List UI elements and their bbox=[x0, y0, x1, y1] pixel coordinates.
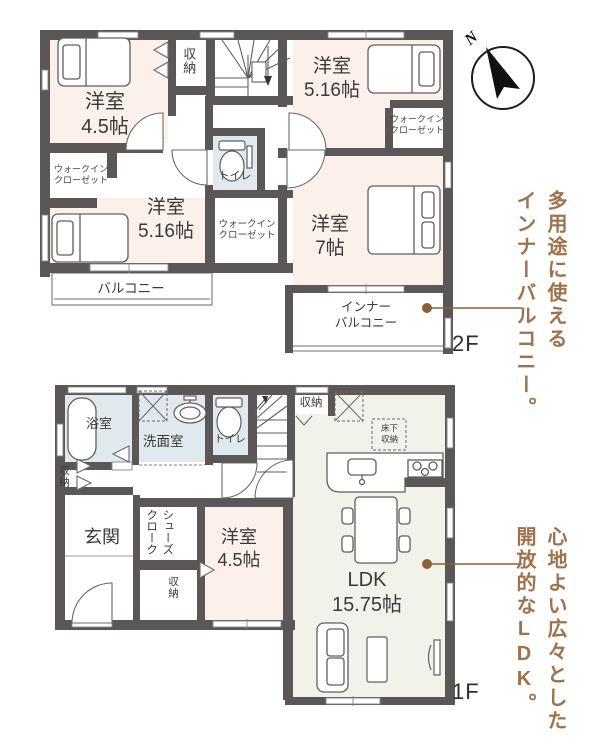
room-label-bedroom7: 洋室 7帖 bbox=[280, 213, 380, 261]
sofa-icon bbox=[317, 623, 348, 692]
room-label-wic-right: ウォークイン クローゼット bbox=[388, 114, 446, 136]
room-label-closet-left: 収納 bbox=[57, 465, 70, 488]
annotation-inner-balcony: 多用途に使える インナーバルコニー。 bbox=[508, 190, 570, 420]
room-label-closet-top: 収納 bbox=[294, 396, 328, 410]
room-label-balcony: バルコニー bbox=[90, 281, 172, 298]
room-label-wic-center: ウォークイン クローゼット bbox=[214, 219, 280, 242]
room-label-bedroom516a: 洋室 5.16帖 bbox=[282, 55, 382, 103]
room-label-ldk: LDK 15.75帖 bbox=[312, 568, 422, 618]
room-label-wic-left: ウォークイン クローゼット bbox=[52, 164, 110, 186]
room-label-closet-2f: 収納 bbox=[180, 47, 196, 75]
room-label-shoes-closet: シューズクローク bbox=[143, 505, 175, 559]
floorplan-page: 洋室 4.5帖 収納 洋室 5.16帖 ウォークイン クローゼット トイレ ウォ… bbox=[0, 0, 606, 751]
room-label-entrance: 玄関 bbox=[72, 526, 132, 549]
room-label-bedroom45-1f: 洋室 4.5帖 bbox=[189, 526, 289, 571]
room-label-bedroom516b: 洋室 5.16帖 bbox=[116, 196, 216, 244]
room-label-toilet-1f: トイレ bbox=[211, 433, 249, 446]
room-label-bath: 浴室 bbox=[86, 416, 112, 432]
room-label-underfloor-storage: 床下 収納 bbox=[374, 423, 405, 445]
toilet-icon-1f bbox=[216, 398, 242, 437]
floor1-label: 1F bbox=[452, 678, 480, 706]
room-label-bedroom45-2f: 洋室 4.5帖 bbox=[55, 90, 155, 140]
bed-icon-45 bbox=[58, 38, 130, 86]
staircase-1f bbox=[254, 395, 287, 472]
floor2-label: 2F bbox=[452, 330, 480, 358]
room-label-inner-balcony: インナー バルコニー bbox=[325, 300, 407, 331]
compass-icon bbox=[472, 47, 534, 109]
room-label-washroom: 洗面室 bbox=[143, 434, 184, 451]
room-label-toilet-2f: トイレ bbox=[214, 170, 256, 184]
coffee-table-icon bbox=[367, 637, 387, 682]
annotation-ldk: 心地よい広々とした 開放的なLDK。 bbox=[508, 526, 570, 733]
room-label-closet-mid: 収納 bbox=[166, 576, 179, 599]
